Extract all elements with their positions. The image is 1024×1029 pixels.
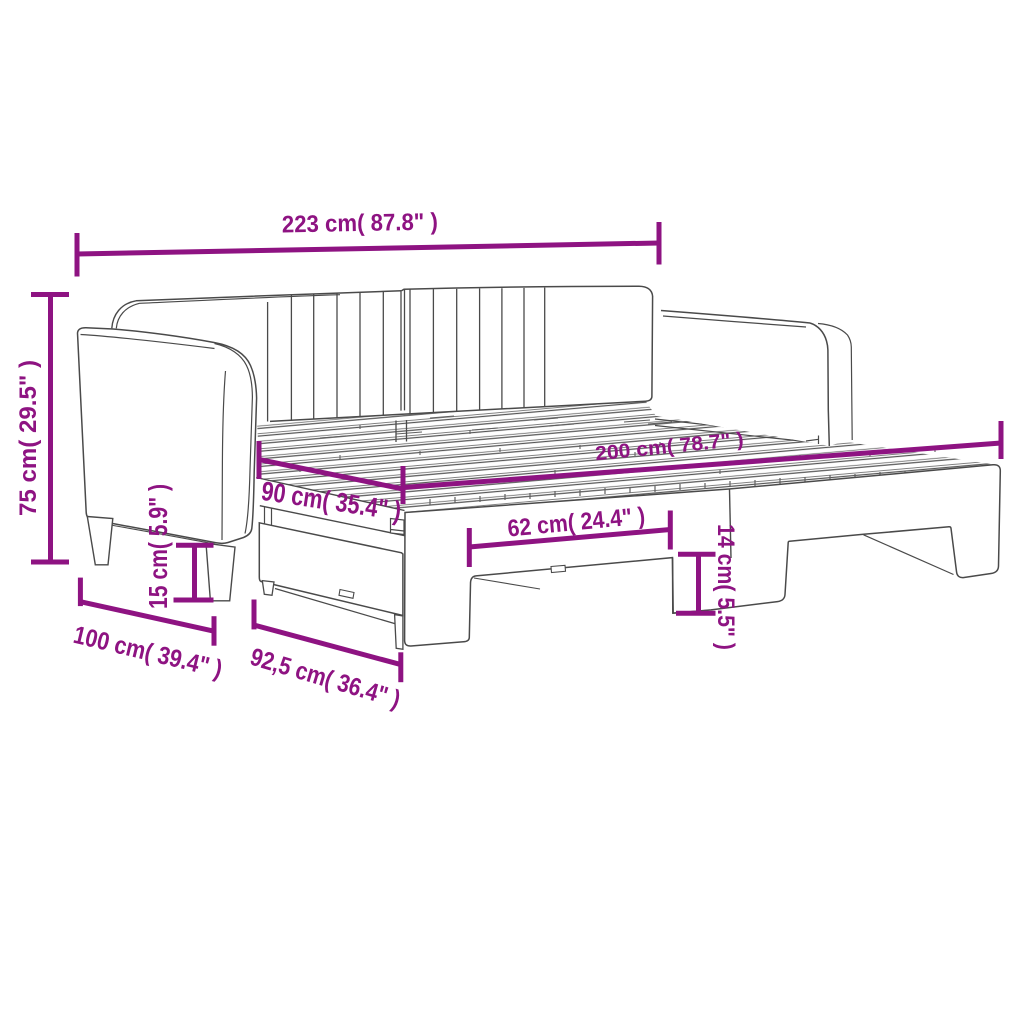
svg-text:15 cm( 5.9" ): 15 cm( 5.9" ) bbox=[143, 484, 173, 609]
svg-text:223 cm( 87.8" ): 223 cm( 87.8" ) bbox=[282, 209, 438, 239]
svg-text:75 cm( 29.5" ): 75 cm( 29.5" ) bbox=[15, 360, 42, 516]
svg-text:14 cm( 5.5" ): 14 cm( 5.5" ) bbox=[712, 524, 739, 650]
